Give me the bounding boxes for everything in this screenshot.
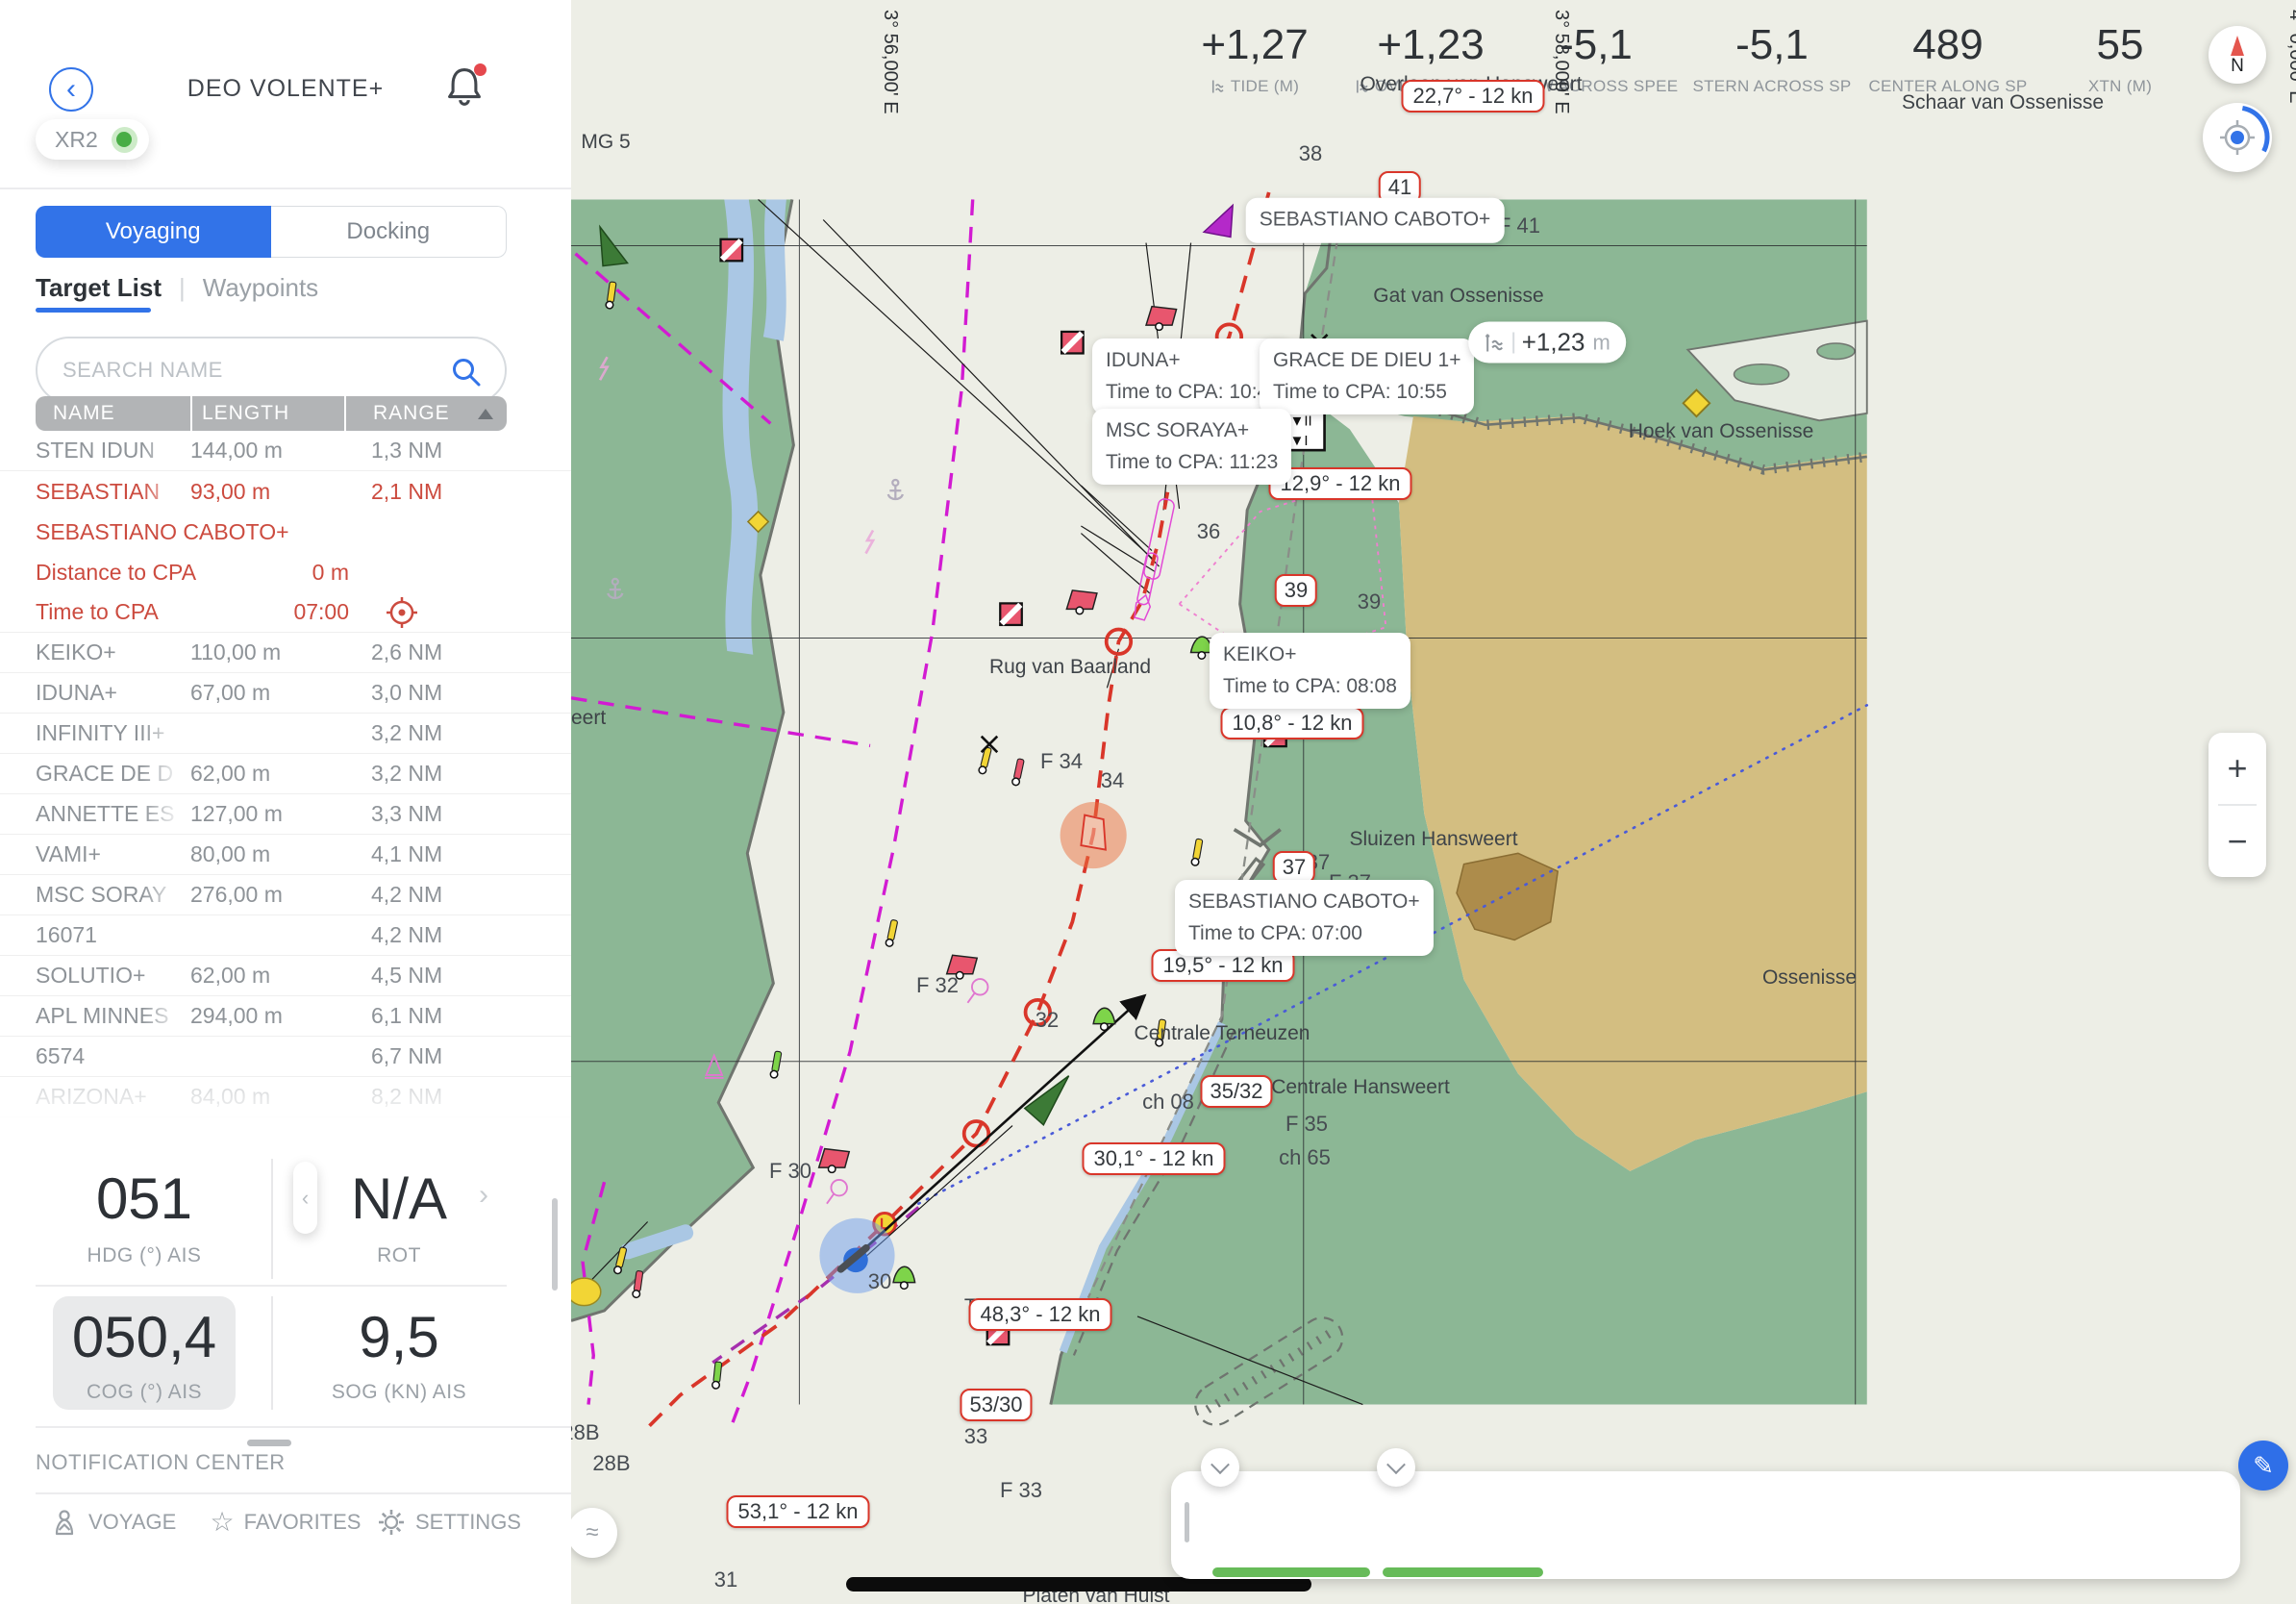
voyage-buoy-icon [50,1508,79,1537]
tab-waypoints[interactable]: Waypoints [203,273,318,303]
target-cpa-time: Time to CPA: 10:47 [1106,377,1280,409]
place-label: Ossenisse [1762,966,1857,990]
target-row[interactable]: SOLUTIO+ 62,00 m4,5 NM [0,956,571,996]
nav-settings[interactable]: SETTINGS [364,1508,521,1537]
mark-label: 28B [592,1451,630,1476]
gear-icon [377,1508,406,1537]
target-speed-label[interactable]: 30,1° - 12 kn [1083,1142,1226,1175]
target-cpa-time: Time to CPA: 07:00 [1188,918,1420,950]
target-row[interactable]: APL MINNES 294,00 m6,1 NM [0,996,571,1037]
28b-buoy [571,1278,601,1306]
islet [1734,364,1789,385]
mark-label: F 35 [1285,1112,1328,1137]
vessel-red-target[interactable] [1081,815,1106,850]
place-label: Gat van Ossenisse [1373,285,1543,308]
waypoint-label[interactable]: 35/32 [1200,1075,1272,1108]
target-callout[interactable]: GRACE DE DIEU 1+ Time to CPA: 10:55 [1260,338,1474,414]
sidebar-resize-handle[interactable] [552,1198,558,1291]
mark-label: ch 65 [1279,1145,1331,1170]
waypoint-label[interactable]: 39 [1275,574,1317,607]
column-range[interactable]: RANGE [344,396,507,431]
selected-target-name: SEBASTIANO CABOTO+ [0,512,571,552]
place-label: Schaar van Ossenisse [1902,91,2104,114]
device-status-pill[interactable]: XR2 [36,119,149,160]
place-label: Centrale Hansweert [1271,1076,1450,1099]
tide-unit: m [1592,330,1610,355]
sog-value: 9,5 [308,1304,490,1370]
edit-route-button[interactable]: ✎ [2238,1441,2288,1491]
notifications-button[interactable] [444,63,488,108]
target-speed-label[interactable]: 48,3° - 12 kn [969,1298,1112,1331]
bottom-nav: VOYAGE ☆ FAVORITES SETTINGS [0,1508,571,1537]
target-name: MSC SORAYA+ [1106,415,1278,447]
target-row[interactable]: MSC SORAY 276,00 m4,2 NM [0,875,571,915]
depth-label: 36 [1197,519,1220,544]
waves-icon: ≈ [586,1519,598,1546]
locate-target-icon[interactable] [385,595,419,630]
meridian-label: 3° 58,000' E [1550,10,1572,114]
stats-next-button[interactable]: › [479,1179,488,1212]
divider [36,1285,507,1287]
divider [0,188,571,189]
tidal-creek-2 [763,199,786,340]
info-bar-handle[interactable] [1185,1502,1189,1542]
chevron-down-icon [1210,1455,1230,1474]
depth-label: 32 [1036,1008,1059,1033]
mode-tabs: Voyaging Docking [36,206,507,258]
place-label: Rug van Baarland [989,656,1151,679]
target-row[interactable]: ARIZONA+ 84,00 m8,2 NM [0,1077,571,1117]
waypoint-label[interactable]: 53/30 [960,1389,1032,1421]
notification-badge [474,63,487,76]
online-status-icon [112,127,137,153]
mark-label: 28B [571,1420,600,1445]
tide-pill[interactable]: +1,23 m [1468,322,1626,363]
target-row-selected[interactable]: SEBASTIAN 93,00 m2,1 NM [0,471,571,512]
rot-label: ROT [308,1244,490,1267]
conning-info-bar[interactable] [1171,1471,2240,1579]
meridian-label: 3° 56,000' E [879,10,901,114]
target-row[interactable]: 6574 6,7 NM [0,1037,571,1077]
depth-label: 30 [868,1269,891,1294]
device-name: XR2 [55,127,98,153]
divider [1512,332,1514,353]
cog-label: COG (°) AIS [53,1381,236,1404]
target-callout[interactable]: SEBASTIANO CABOTO+ [1246,198,1505,243]
scale-bar [846,1577,1311,1591]
place-label-fragment: eert [571,707,606,730]
target-callout[interactable]: MSC SORAYA+ Time to CPA: 11:23 [1092,409,1291,485]
info-value: -5,1 [1735,21,1809,69]
tab-voyaging[interactable]: Voyaging [36,206,271,258]
divider [271,1159,273,1279]
place-label: Hoek van Ossenisse [1629,420,1814,443]
target-name: SEBASTIANO CABOTO+ [1260,209,1491,231]
tab-docking[interactable]: Docking [271,206,508,258]
target-speed-label[interactable]: 22,7° - 12 kn [1402,80,1545,113]
tab-target-list[interactable]: Target List [36,273,162,303]
place-label: Sluizen Hansweert [1349,828,1517,851]
svg-text:▼II: ▼II [1290,414,1312,430]
place-label: MG 5 [581,131,630,154]
locate-button[interactable] [2203,103,2272,172]
nav-voyage-label: VOYAGE [88,1510,176,1535]
zoom-controls[interactable]: + − [2209,733,2266,877]
info-value: 55 [2097,21,2144,69]
notification-center-title[interactable]: NOTIFICATION CENTER [36,1450,286,1475]
nav-voyage[interactable]: VOYAGE [50,1508,207,1537]
active-tab-underline [36,308,151,313]
info-value: +1,27 [1201,21,1308,69]
rot-value: N/A [308,1165,490,1232]
chevron-down-icon [1386,1455,1406,1474]
sog-label: SOG (KN) AIS [308,1381,490,1404]
meridian-label: 4° 0,000' E [2284,10,2296,103]
table-header[interactable]: NAME LENGTH RANGE [36,396,507,431]
target-list: STEN IDUN 144,00 m1,3 NM SEBASTIAN 93,00… [0,431,571,1117]
target-speed-label[interactable]: 10,8° - 12 kn [1221,707,1364,739]
mark-label: F 41 [1498,213,1540,238]
target-cpa-time: Time to CPA: 11:23 [1106,447,1278,479]
target-row[interactable]: INFINITY III+ 3,2 NM [0,714,571,754]
list-tabs: Target List | Waypoints [36,273,318,303]
sort-asc-icon [478,409,493,419]
target-row[interactable]: VAMI+ 80,00 m4,1 NM [0,835,571,875]
notification-drag-handle[interactable] [247,1440,291,1446]
sidebar-panel: ‹ DEO VOLENTE+ XR2 Voyaging Docking Targ… [0,0,571,1604]
divider [36,1426,571,1428]
svg-text:▼I: ▼I [1290,433,1309,449]
target-row[interactable]: KEIKO+ 110,00 m2,6 NM [0,633,571,673]
target-callout[interactable]: KEIKO+ Time to CPA: 08:08 [1210,633,1410,709]
mark-label: F 30 [769,1159,811,1184]
depth-label: 31 [714,1567,737,1592]
tide-gauge-icon [1210,79,1226,94]
target-callout[interactable]: SEBASTIANO CABOTO+ Time to CPA: 07:00 [1175,880,1434,956]
mark-label: F 32 [916,973,959,998]
compass-button[interactable]: N [2209,26,2266,84]
chart-map[interactable]: 20 - 12 kn [571,0,2296,1604]
target-name: KEIKO+ [1223,639,1397,671]
depth-label: 39 [1358,589,1381,614]
nav-settings-label: SETTINGS [415,1510,521,1535]
selected-target-cpa-time: Time to CPA07:00 [0,592,571,633]
compass-north-label: N [2231,57,2244,75]
info-progress-bar [1383,1567,1543,1577]
depth-label: 33 [964,1424,987,1449]
target-name: IDUNA+ [1106,345,1280,377]
hdg-value: 051 [53,1165,236,1232]
target-row[interactable]: ANNETTE ES 127,00 m3,3 NM [0,794,571,835]
stats-prev-button[interactable]: ‹ [293,1162,317,1234]
compass-needle-icon [2223,36,2252,57]
divider [271,1296,273,1410]
chevron-right-icon: › [479,1179,488,1211]
info-value: +1,23 [1377,21,1484,69]
hdg-label: HDG (°) AIS [53,1244,236,1267]
target-row[interactable]: GRACE DE D 62,00 m3,2 NM [0,754,571,794]
target-row[interactable]: 16071 4,2 NM [0,915,571,956]
target-row[interactable]: STEN IDUN 144,00 m1,3 NM [0,431,571,471]
collapse-overloop-button[interactable] [1377,1448,1415,1487]
info-progress-bar [1212,1567,1370,1577]
info-label: TIDE (M) [1210,77,1299,96]
column-length[interactable]: LENGTH [190,396,344,431]
target-cpa-time: Time to CPA: 08:08 [1223,671,1397,703]
search-icon[interactable] [449,355,484,389]
divider [36,1492,571,1494]
target-row[interactable]: IDUNA+ 67,00 m3,0 NM [0,673,571,714]
pencil-icon: ✎ [2253,1451,2274,1481]
info-value: 489 [1912,21,1983,69]
depth-label: 34 [1101,768,1124,793]
islet-2 [1817,343,1855,360]
place-label: Centrale Terneuzen [1135,1022,1310,1045]
info-label: STERN ACROSS SP [1692,77,1851,96]
collapse-tide-button[interactable] [1201,1448,1239,1487]
search-input[interactable] [62,338,428,402]
search-field[interactable] [36,337,507,404]
selected-target-cpa-distance: Distance to CPA0 m [0,552,571,592]
mark-label: F 34 [1040,749,1083,774]
target-name: SEBASTIANO CABOTO+ [1188,887,1420,918]
star-icon: ☆ [211,1509,235,1536]
zoom-in-button[interactable]: + [2209,733,2266,804]
target-speed-label[interactable]: 53,1° - 12 kn [727,1495,870,1528]
nav-favorites[interactable]: ☆ FAVORITES [207,1509,363,1536]
nav-favorites-label: FAVORITES [244,1510,362,1535]
zoom-out-button[interactable]: − [2209,806,2266,877]
target-name: GRACE DE DIEU 1+ [1273,345,1460,377]
locate-icon [2203,103,2272,172]
chevron-left-icon: ‹ [302,1186,309,1211]
column-name[interactable]: NAME [36,402,190,425]
mark-label: ch 08 [1142,1090,1194,1115]
target-cpa-time: Time to CPA: 10:55 [1273,377,1460,409]
tide-gauge-icon [1484,332,1505,353]
mark-label: F 33 [1000,1478,1042,1503]
waypoint-label[interactable]: 37 [1273,851,1315,884]
depth-label: 38 [1299,141,1322,166]
divider: | [179,273,186,303]
tide-value: +1,23 [1522,328,1585,358]
cog-value: 050,4 [53,1304,236,1370]
